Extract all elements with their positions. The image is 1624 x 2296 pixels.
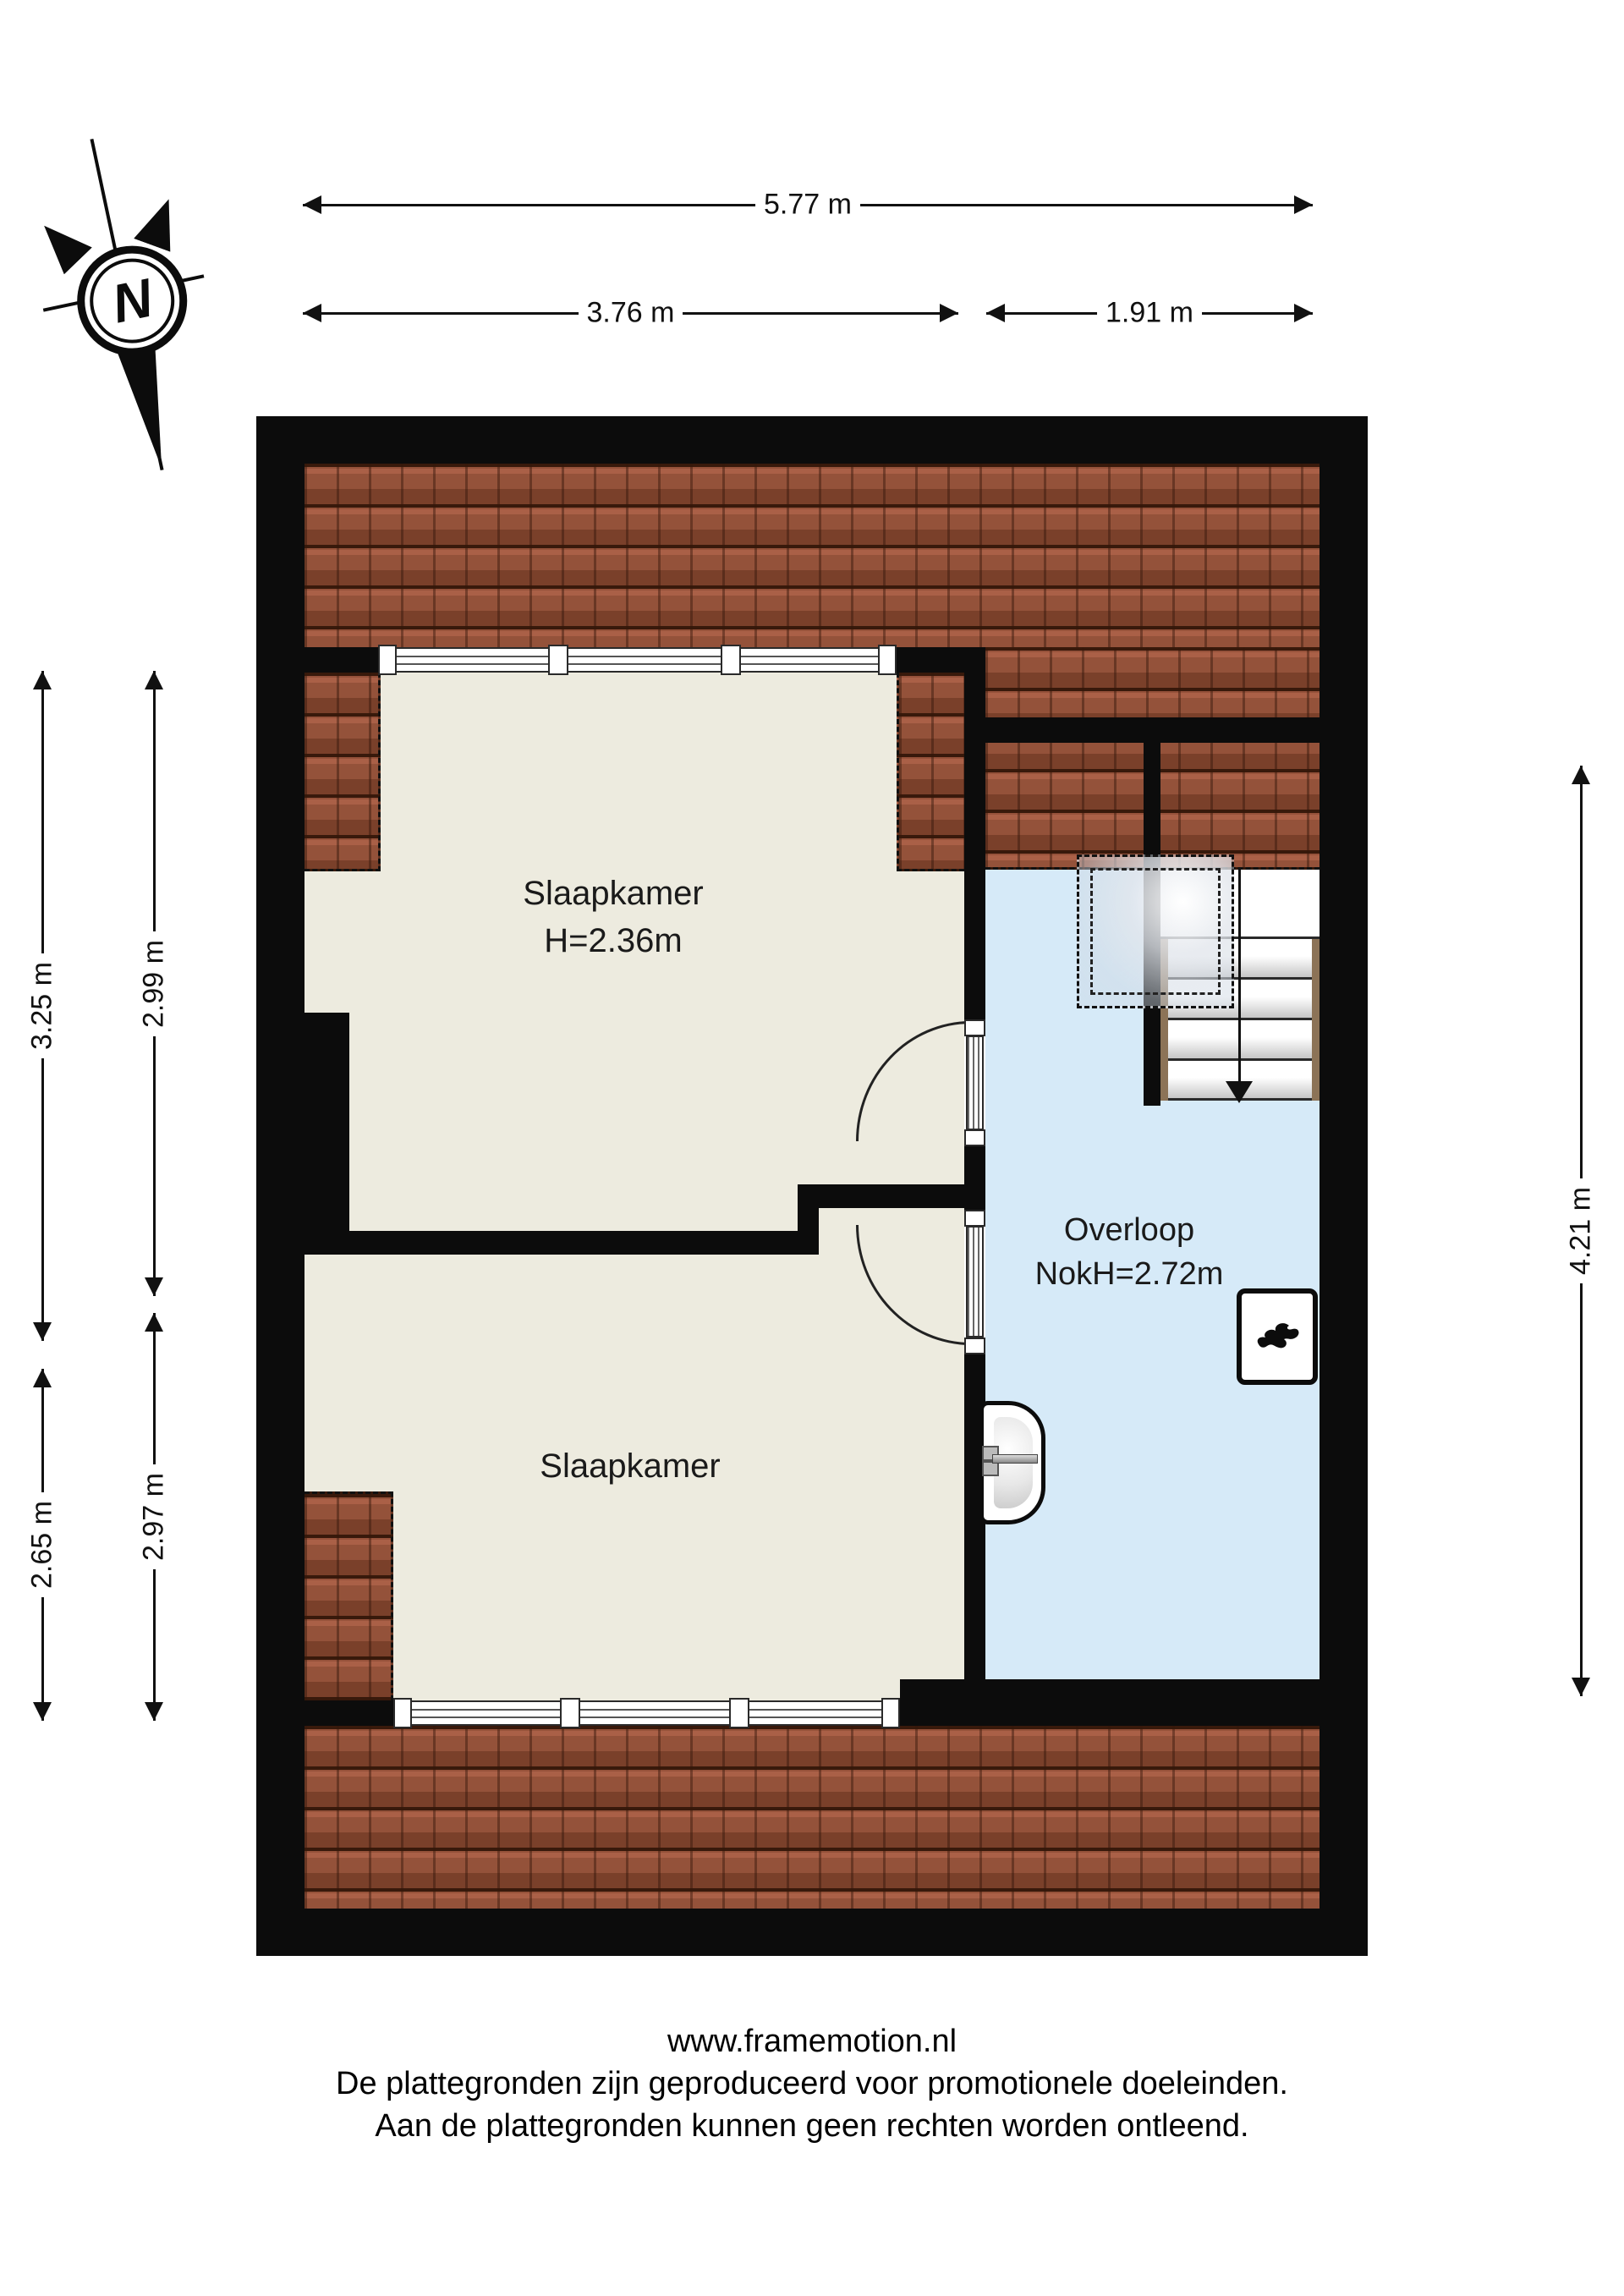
roof-tiles-top xyxy=(304,464,1319,647)
wall-bedroom1-right xyxy=(964,647,985,1019)
landing-label: Overloop NokH=2.72m xyxy=(960,1208,1298,1296)
roof-tiles-strip-bedroom1-right xyxy=(897,673,964,871)
dim-top-right-label: 1.91 m xyxy=(1097,297,1202,330)
dim-right-side: 4.21 m xyxy=(1567,766,1594,1696)
bedroom1-window-post-left xyxy=(378,645,397,675)
sink-tap-spout xyxy=(992,1454,1038,1464)
wall-left-step xyxy=(304,1013,349,1233)
dim-top-left-label: 3.76 m xyxy=(579,297,683,330)
heater-unit xyxy=(1237,1288,1318,1385)
skylight-inner-outline xyxy=(1090,868,1221,995)
arrow-down xyxy=(1572,1678,1590,1696)
dim-right-side-label: 4.21 m xyxy=(1565,1178,1598,1283)
dim-left-outer-top: 3.25 m xyxy=(29,671,56,1341)
bedroom1-window-post-right xyxy=(878,645,897,675)
roof-tiles-strip-bedroom1-left xyxy=(304,673,381,871)
arrow-down xyxy=(33,1322,52,1341)
arrow-up xyxy=(145,1313,163,1332)
footer-disclaimer-2: Aan de plattegronden kunnen geen rechten… xyxy=(0,2105,1624,2147)
bedroom1-window xyxy=(378,647,897,673)
bedroom1-door-leaf xyxy=(966,1035,984,1130)
bedroom2-window xyxy=(393,1700,900,1726)
compass-north-label: N xyxy=(67,236,197,366)
compass-rose: N xyxy=(17,124,236,486)
stair-down-arrow xyxy=(1226,1081,1253,1103)
outer-wall-top xyxy=(256,416,1368,464)
footer-disclaimer-1: De plattegronden zijn geproduceerd voor … xyxy=(0,2063,1624,2105)
bedroom2-label: Slaapkamer xyxy=(461,1442,799,1490)
outer-wall-right xyxy=(1319,416,1368,1956)
dim-left-inner-bottom-label: 2.97 m xyxy=(138,1464,171,1569)
wall-bedroom2-window-left xyxy=(304,1700,393,1726)
arrow-down xyxy=(145,1702,163,1721)
bedroom2-name: Slaapkamer xyxy=(461,1442,799,1490)
arrow-up xyxy=(145,671,163,689)
arrow-right xyxy=(940,304,958,322)
sink xyxy=(979,1401,1045,1524)
arrow-up xyxy=(33,1369,52,1387)
arrow-down xyxy=(33,1702,52,1721)
dim-left-outer-bottom-label: 2.65 m xyxy=(26,1492,59,1597)
arrow-up xyxy=(1572,766,1590,784)
wall-landing-bottom xyxy=(900,1679,1319,1726)
compass-south-spike xyxy=(112,339,185,473)
footer-text: www.framemotion.nl De plattegronden zijn… xyxy=(0,2020,1624,2147)
arrow-right xyxy=(1294,195,1313,214)
bedroom1-label: Slaapkamer H=2.36m xyxy=(444,870,782,964)
arrow-left xyxy=(303,195,321,214)
stair-stringer-right xyxy=(1312,939,1319,1101)
footer-url: www.framemotion.nl xyxy=(0,2020,1624,2063)
roof-tiles-bottom xyxy=(304,1726,1319,1909)
bedroom2-window-post-right xyxy=(881,1698,900,1728)
dim-left-inner-bottom: 2.97 m xyxy=(140,1313,167,1721)
dim-left-inner-top: 2.99 m xyxy=(140,671,167,1296)
compass-tick-west xyxy=(43,301,80,312)
wall-landing-top xyxy=(964,717,1319,743)
flame-icon xyxy=(1254,1316,1301,1358)
stair-direction-line xyxy=(1238,870,1241,1088)
bedroom2-door-post-bottom xyxy=(964,1338,985,1354)
wall-divider-right xyxy=(819,1184,985,1208)
landing-name: Overloop xyxy=(960,1208,1298,1252)
wall-between-doors xyxy=(964,1146,985,1210)
bedroom1-height: H=2.36m xyxy=(444,917,782,964)
dim-top-right: 1.91 m xyxy=(986,299,1313,327)
arrow-down xyxy=(145,1277,163,1296)
bedroom2-window-mullion-1 xyxy=(560,1698,580,1728)
bedroom1-door-post-bottom xyxy=(964,1129,985,1146)
arrow-right xyxy=(1294,304,1313,322)
wall-divider-left xyxy=(304,1231,798,1255)
landing-ridge-height: NokH=2.72m xyxy=(960,1252,1298,1296)
arrow-up xyxy=(33,671,52,689)
dim-top-left: 3.76 m xyxy=(303,299,958,327)
bedroom1-window-mullion-2 xyxy=(721,645,741,675)
bedroom1-window-mullion-1 xyxy=(548,645,568,675)
outer-wall-left xyxy=(256,416,304,1956)
outer-wall-bottom xyxy=(256,1909,1368,1956)
dim-left-outer-top-label: 3.25 m xyxy=(26,953,59,1058)
dim-top-total: 5.77 m xyxy=(303,191,1313,218)
floorplan-page: N 5.77 m 3.76 m 1.91 m 3.25 m 2.65 m 2. xyxy=(0,0,1624,2296)
wall-divider-jog xyxy=(798,1184,819,1255)
dim-left-outer-bottom: 2.65 m xyxy=(29,1369,56,1721)
bedroom1-name: Slaapkamer xyxy=(444,870,782,917)
bedroom2-window-post-left xyxy=(393,1698,412,1728)
bedroom2-window-mullion-2 xyxy=(729,1698,749,1728)
roof-tiles-strip-bedroom2-left xyxy=(304,1491,393,1700)
arrow-left xyxy=(303,304,321,322)
arrow-left xyxy=(986,304,1005,322)
dim-left-inner-top-label: 2.99 m xyxy=(138,931,171,1036)
dim-top-total-label: 5.77 m xyxy=(755,189,860,222)
wall-bedroom1-window-left xyxy=(304,647,378,673)
bedroom1-door-post-top xyxy=(964,1019,985,1036)
